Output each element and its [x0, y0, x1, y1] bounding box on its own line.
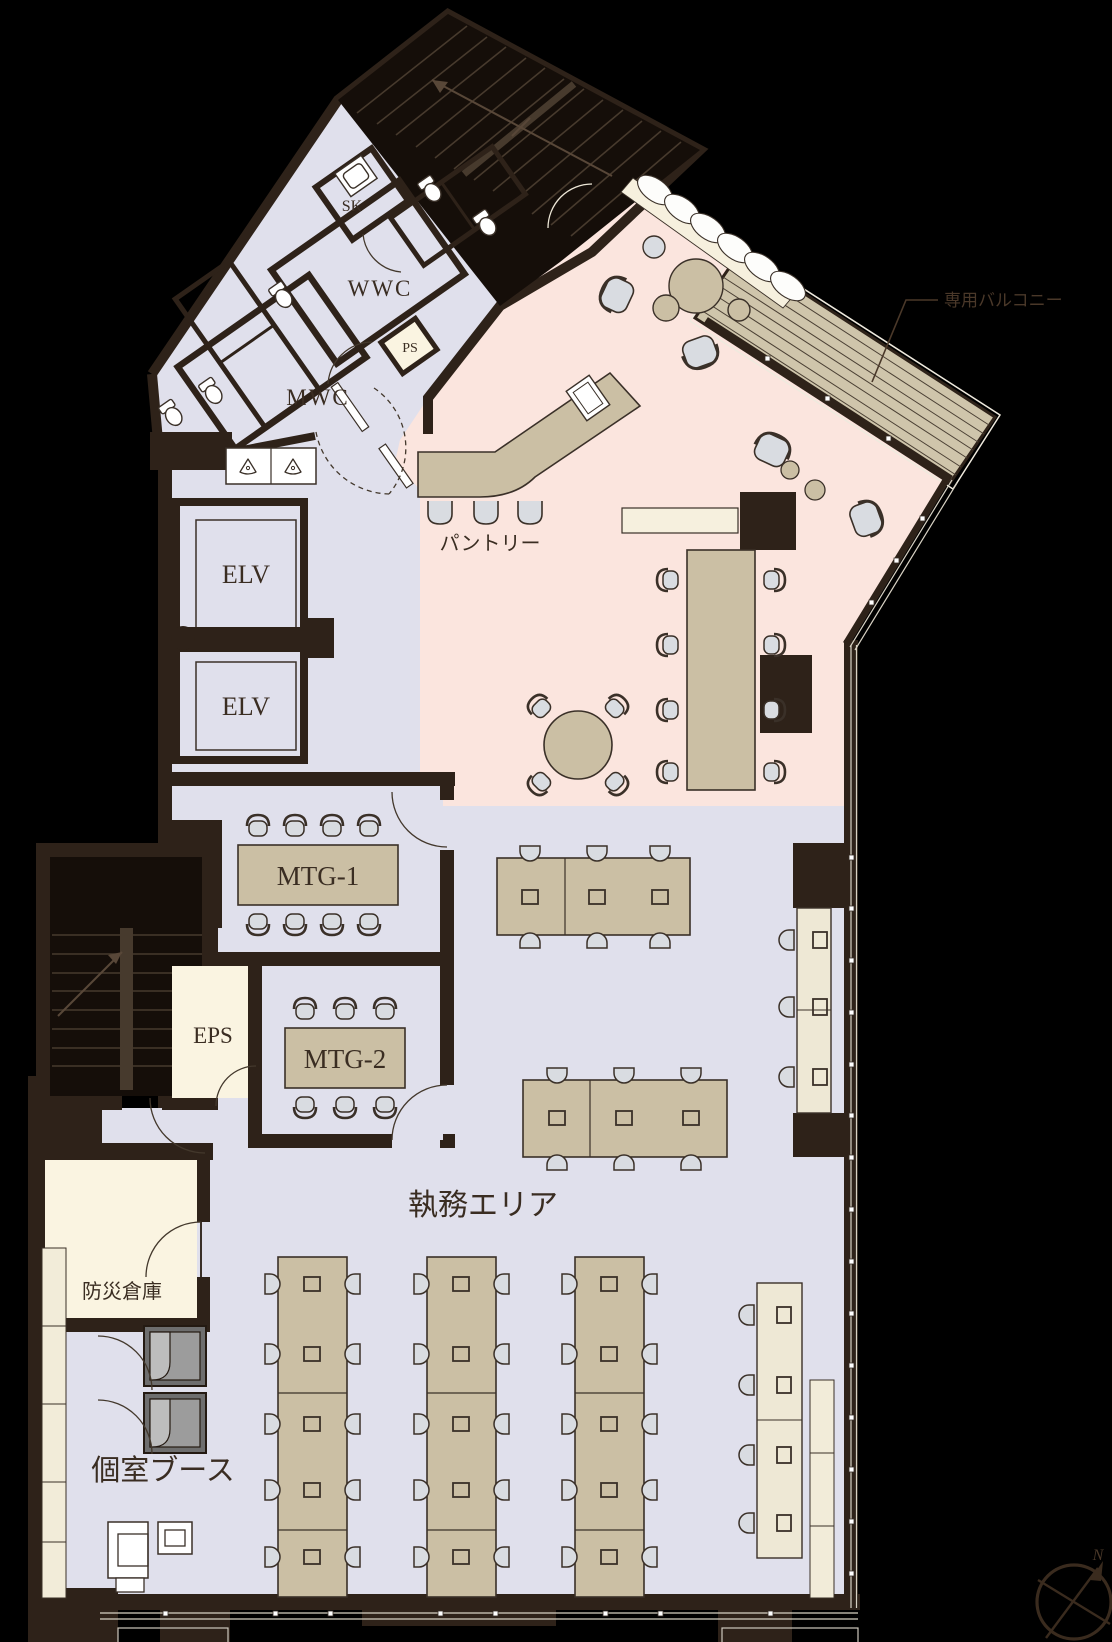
desk-column-c	[562, 1257, 657, 1597]
floor-plan-canvas: SK WWC MWC PS ELV ELV パントリー MTG-1 MTG-2 …	[0, 0, 1112, 1642]
chair-icon	[547, 1155, 567, 1170]
chair-icon	[739, 1305, 754, 1325]
chair-icon	[739, 1375, 754, 1395]
eps-label: EPS	[193, 1023, 233, 1048]
chair-icon	[494, 1274, 509, 1294]
stair-top-wall	[36, 843, 218, 857]
chair-icon	[345, 1547, 360, 1567]
chair-icon	[739, 1445, 754, 1465]
chair-icon	[642, 1274, 657, 1294]
chair-icon	[562, 1414, 577, 1434]
chair-icon	[414, 1274, 429, 1294]
chair-icon	[414, 1547, 429, 1567]
elevator-2-label: ELV	[222, 692, 270, 721]
room-label-sk: SK	[342, 198, 363, 215]
floor-plan-page: SK WWC MWC PS ELV ELV パントリー MTG-1 MTG-2 …	[0, 0, 1112, 1642]
chair-icon	[547, 1068, 567, 1083]
chair-icon	[650, 846, 670, 861]
east-pillar-2	[793, 1113, 852, 1157]
chair-icon	[614, 1155, 634, 1170]
side-table	[781, 461, 799, 479]
chair-icon	[265, 1344, 280, 1364]
chair-icon	[562, 1344, 577, 1364]
chair-icon	[520, 933, 540, 948]
desk	[278, 1257, 347, 1597]
disaster-right-wall-a	[197, 1160, 210, 1222]
pantry-label: パントリー	[440, 533, 541, 555]
booth-sofa-icon	[144, 1326, 206, 1386]
chair-icon	[345, 1274, 360, 1294]
east-wall-desks-upper	[779, 908, 831, 1113]
chair-icon	[414, 1414, 429, 1434]
lounge-pillar	[760, 655, 812, 733]
chair-icon	[779, 1067, 794, 1087]
chair-icon	[681, 1155, 701, 1170]
chair-icon	[345, 1414, 360, 1434]
private-booth-label: 個室ブース	[91, 1454, 235, 1487]
chair-icon	[494, 1344, 509, 1364]
lounge-column	[740, 492, 796, 550]
mtg1-label: MTG-1	[277, 861, 360, 891]
stool-icon	[428, 501, 452, 524]
desk	[427, 1257, 496, 1597]
elv-wall-block	[304, 618, 334, 658]
chair-icon	[779, 930, 794, 950]
side-table	[728, 299, 750, 321]
balcony-label: 専用バルコニー	[944, 291, 1063, 310]
bench-row-1	[497, 846, 690, 948]
south-chunk-3	[362, 1594, 556, 1626]
chair-icon	[562, 1547, 577, 1567]
chair-icon	[614, 1068, 634, 1083]
chair-icon	[642, 1414, 657, 1434]
room-label-mwc: MWC	[286, 385, 350, 410]
desk	[497, 858, 690, 935]
south-chunk-4	[718, 1594, 792, 1642]
elevator-1-label: ELV	[222, 560, 270, 589]
chair-icon	[265, 1414, 280, 1434]
disaster-right-wall-b	[197, 1277, 210, 1332]
mtg1-top-wall	[158, 772, 455, 786]
chair-icon	[650, 933, 670, 948]
lounge-bench	[622, 508, 738, 533]
eps-mtg2-wall	[248, 966, 262, 1148]
chair-icon	[345, 1480, 360, 1500]
disaster-storage-label: 防災倉庫	[82, 1280, 162, 1303]
stool-icon	[474, 501, 498, 524]
chair-icon	[265, 1274, 280, 1294]
mtg1-right-wall-b	[440, 850, 454, 1085]
west-outer-wall	[28, 1148, 42, 1610]
room-label-ps: PS	[402, 341, 418, 356]
chair-icon	[520, 846, 540, 861]
room-label-wwc: WWC	[348, 276, 413, 301]
copier-icon	[158, 1522, 192, 1554]
desk-column-a	[265, 1257, 360, 1597]
mtg2-label: MTG-2	[304, 1044, 387, 1074]
chair-icon	[587, 933, 607, 948]
side-table	[643, 236, 665, 258]
elv-divider-cap	[171, 626, 195, 650]
round-table	[544, 711, 612, 779]
east-pillar-1	[793, 843, 852, 908]
south-chunk-2	[160, 1594, 230, 1642]
chair-icon	[494, 1480, 509, 1500]
chair-icon	[345, 1344, 360, 1364]
chair-icon	[494, 1547, 509, 1567]
east-cabinets	[810, 1380, 834, 1598]
mtg2-bottom-wall-b	[443, 1134, 455, 1148]
disaster-top-wall	[28, 1143, 213, 1160]
chair-icon	[414, 1480, 429, 1500]
chair-icon	[494, 1414, 509, 1434]
chair-icon	[265, 1547, 280, 1567]
chair-icon	[642, 1344, 657, 1364]
chair-icon	[587, 846, 607, 861]
stair-left-wall	[36, 843, 50, 1110]
stool-icon	[518, 501, 542, 524]
chair-icon	[414, 1344, 429, 1364]
compass-north-label: N	[1092, 1547, 1105, 1564]
work-area-label: 執務エリア	[408, 1189, 558, 1222]
chair-icon	[562, 1480, 577, 1500]
side-table	[805, 480, 825, 500]
wall-cabinets	[42, 1248, 66, 1598]
washbasin-counter	[226, 448, 316, 484]
bench-row-2	[523, 1068, 727, 1170]
desk-column-b	[414, 1257, 509, 1597]
chair-icon	[681, 1068, 701, 1083]
chair-icon	[642, 1480, 657, 1500]
side-table	[653, 295, 679, 321]
chair-icon	[265, 1480, 280, 1500]
chair-icon	[779, 997, 794, 1017]
long-table	[687, 550, 755, 790]
mtg2-bottom-wall-a	[255, 1134, 392, 1148]
desk	[575, 1257, 644, 1597]
mtg1-right-wall-a	[440, 786, 454, 800]
chair-icon	[642, 1547, 657, 1567]
chair-icon	[739, 1513, 754, 1533]
booth-sofa-icon	[144, 1393, 206, 1453]
desk	[523, 1080, 727, 1157]
chair-icon	[562, 1274, 577, 1294]
